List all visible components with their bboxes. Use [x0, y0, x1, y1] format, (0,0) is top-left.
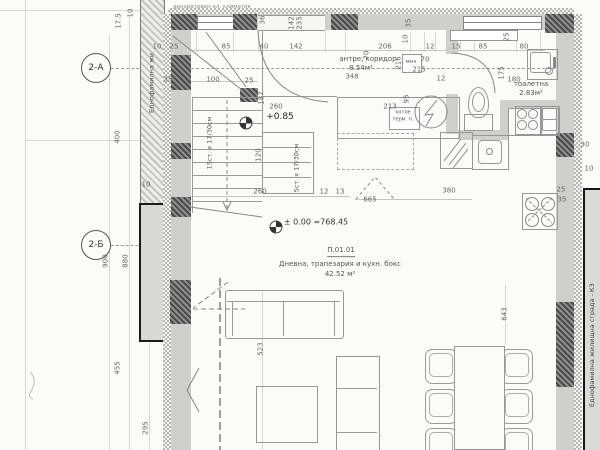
- dimension-label: 455: [115, 360, 122, 375]
- dimension-label: 900: [103, 253, 110, 268]
- toilet-area: 2.83м²: [519, 90, 543, 98]
- dimension-label: 175: [499, 65, 506, 80]
- dimension-label: 15: [451, 44, 462, 51]
- dimension-label: 12: [319, 189, 330, 196]
- boiler-label: терм. п.: [393, 117, 414, 123]
- dimension-label: 665: [362, 197, 377, 204]
- grid-axis-label: 2-Б: [88, 240, 103, 250]
- boiler-label: котле: [395, 110, 410, 116]
- dimension-label: 260: [268, 104, 283, 111]
- right-neighbor-label: Еднофамилна жилищна сграда - КЗ: [585, 245, 599, 445]
- dimension-label: 70: [420, 57, 431, 64]
- dimension-label: 40: [259, 44, 270, 51]
- level-marker-icon: [270, 221, 282, 233]
- stair-flight1-label: 15ст. х 17/30см: [206, 117, 213, 170]
- dimension-label: 10: [152, 44, 163, 51]
- room-number: П.01.01: [327, 247, 355, 257]
- dimension-label: 70: [364, 50, 371, 61]
- dimension-label: 95: [404, 94, 411, 105]
- dimension-label: 295: [143, 420, 150, 435]
- dimension-label: 10: [128, 8, 135, 19]
- dimension-label: 235: [297, 15, 304, 30]
- dimension-label: 35: [163, 77, 174, 84]
- dimension-label: 35: [406, 18, 413, 29]
- dimension-label: 880: [123, 253, 130, 268]
- hob-cross-dashed: [526, 198, 552, 223]
- dimension-label: 142: [289, 15, 296, 30]
- dimension-label: 215: [411, 67, 426, 74]
- dimension-label: 400: [115, 129, 122, 144]
- dimension-label: 260: [252, 189, 267, 196]
- section-callout-dashed: [193, 282, 245, 309]
- level-ground: ± 0.00 =768.45: [284, 219, 348, 228]
- dimension-label: 180: [506, 77, 521, 84]
- dimension-label: 25: [504, 32, 511, 43]
- dimension-label: 35: [557, 197, 568, 204]
- dimension-label: 85: [221, 44, 232, 51]
- living-name: Дневна, трапезария и кухн. бокс: [279, 261, 401, 269]
- grid-axis-bubble-2A: 2-А: [81, 53, 111, 83]
- dimension-label: 36: [260, 15, 267, 26]
- living-area: 42.52 м²: [325, 271, 355, 279]
- dimension-label: 12: [425, 44, 436, 51]
- dimension-label: 380: [441, 188, 456, 195]
- dimension-label: 348: [344, 74, 359, 81]
- dimension-label: 100: [205, 77, 220, 84]
- dimension-label: 213: [382, 104, 397, 111]
- dimension-label: 120: [256, 147, 263, 162]
- dimension-label: 17.5: [116, 12, 123, 30]
- boiler-icon: [415, 96, 447, 128]
- dimension-label: 85: [478, 44, 489, 51]
- dimension-label: 80: [519, 44, 530, 51]
- dimension-label: 13: [335, 189, 346, 196]
- toilet-door-arc: [452, 53, 495, 93]
- grid-axis-label: 2-А: [88, 63, 103, 73]
- dimension-label: 206: [377, 44, 392, 51]
- floor-plan: 2-А 2-Б Еднофамилна жи Еднофамилна жилищ…: [0, 0, 600, 450]
- dimension-label: 142: [288, 44, 303, 51]
- dimension-label: 216: [396, 55, 403, 70]
- dishwasher-hatch: [444, 139, 468, 168]
- dimension-label: 25: [556, 187, 567, 194]
- stair-flight2-label: 5ст. х 17/30см: [293, 144, 300, 193]
- dimension-label: 25: [169, 44, 180, 51]
- dimension-label: 643: [502, 306, 509, 321]
- dimension-label: 523: [258, 341, 265, 356]
- terrace-opening-symbol: [187, 368, 199, 412]
- pencil-mark: [29, 372, 34, 399]
- level-marker-icon: [240, 117, 252, 129]
- level-upper: +0.85: [266, 113, 294, 123]
- dimension-label: 25: [244, 78, 255, 85]
- shaft-label: мнз: [406, 59, 417, 65]
- left-boundary-label: Еднофамилна жи: [141, 8, 162, 158]
- dimension-label: 10: [584, 166, 595, 173]
- dimension-label: 187: [259, 90, 266, 105]
- dimension-label: 12: [436, 76, 447, 83]
- dimension-label: 30: [580, 142, 591, 149]
- dimension-label: 10: [403, 34, 410, 45]
- dimension-label: 10: [141, 182, 152, 189]
- top-note: декоративен ел. климатик: [173, 4, 251, 10]
